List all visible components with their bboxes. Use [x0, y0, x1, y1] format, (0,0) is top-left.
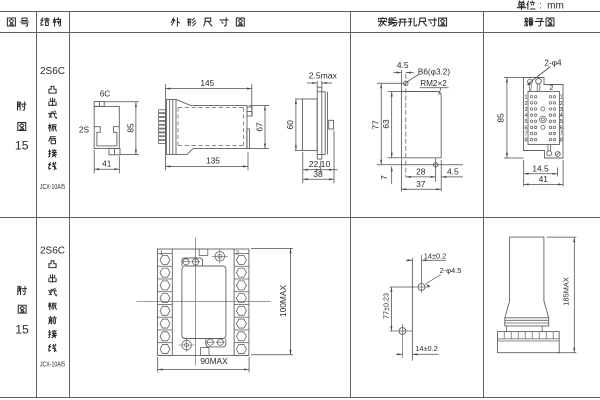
- svg-text:2: 2: [550, 85, 554, 92]
- svg-text:6: 6: [560, 125, 563, 131]
- svg-text:14±0.2: 14±0.2: [424, 251, 447, 260]
- svg-text:22,10: 22,10: [309, 159, 331, 169]
- svg-text:100MAX: 100MAX: [278, 285, 288, 318]
- svg-text:5: 5: [560, 119, 563, 125]
- svg-text:7: 7: [560, 131, 563, 137]
- svg-text:4.5: 4.5: [447, 167, 459, 177]
- svg-text:2: 2: [525, 101, 528, 107]
- svg-text:38: 38: [313, 169, 323, 179]
- svg-text:1: 1: [525, 95, 528, 101]
- svg-text::: :: [539, 1, 542, 12]
- svg-text:1: 1: [160, 250, 163, 256]
- svg-text:3: 3: [560, 107, 563, 113]
- svg-text:63: 63: [381, 119, 391, 129]
- svg-text:41: 41: [539, 174, 549, 184]
- svg-text:8: 8: [560, 138, 563, 144]
- svg-text:2: 2: [236, 250, 239, 256]
- svg-text:15: 15: [15, 322, 29, 336]
- svg-text:41: 41: [102, 158, 112, 168]
- svg-text:2S6C: 2S6C: [40, 246, 65, 257]
- svg-text:2S: 2S: [79, 124, 90, 134]
- svg-text:7: 7: [525, 131, 528, 137]
- svg-text:67: 67: [254, 122, 264, 132]
- svg-text:60: 60: [285, 120, 295, 130]
- svg-text:1: 1: [560, 95, 563, 101]
- svg-text:28: 28: [416, 167, 426, 177]
- svg-text:77±0.23: 77±0.23: [381, 293, 390, 319]
- svg-text:85: 85: [495, 113, 505, 123]
- svg-text:90MAX: 90MAX: [200, 356, 228, 366]
- svg-text:4.5: 4.5: [397, 60, 409, 70]
- svg-text:14.5: 14.5: [532, 163, 549, 173]
- svg-text:RM2×2: RM2×2: [420, 79, 447, 88]
- svg-text:2-φ4.5: 2-φ4.5: [440, 266, 462, 275]
- svg-text:JCX-10A/5: JCX-10A/5: [40, 362, 65, 369]
- svg-text:135: 135: [206, 155, 220, 165]
- svg-text:mm: mm: [547, 1, 564, 12]
- svg-text:2-φ4: 2-φ4: [544, 58, 562, 67]
- svg-text:14±0.2: 14±0.2: [415, 344, 438, 353]
- svg-text:4: 4: [525, 113, 528, 119]
- svg-text:7: 7: [379, 175, 389, 180]
- svg-text:2: 2: [560, 101, 563, 107]
- svg-text:145: 145: [200, 78, 214, 88]
- svg-text:77: 77: [371, 120, 381, 130]
- svg-text:JCX-10A/5: JCX-10A/5: [40, 184, 65, 191]
- svg-text:37: 37: [416, 179, 426, 189]
- svg-text:2S6C: 2S6C: [40, 66, 65, 77]
- svg-text:5: 5: [525, 119, 528, 125]
- svg-text:2.5max: 2.5max: [309, 70, 338, 80]
- svg-text:4: 4: [560, 113, 563, 119]
- svg-text:B6(φ3.2): B6(φ3.2): [418, 67, 450, 76]
- svg-text:6: 6: [525, 125, 528, 131]
- svg-text:85: 85: [126, 123, 136, 133]
- svg-text:185MAX: 185MAX: [562, 277, 571, 305]
- svg-text:3: 3: [525, 107, 528, 113]
- svg-text:15: 15: [15, 138, 29, 152]
- svg-text:6C: 6C: [100, 89, 111, 99]
- svg-text:8: 8: [525, 138, 528, 144]
